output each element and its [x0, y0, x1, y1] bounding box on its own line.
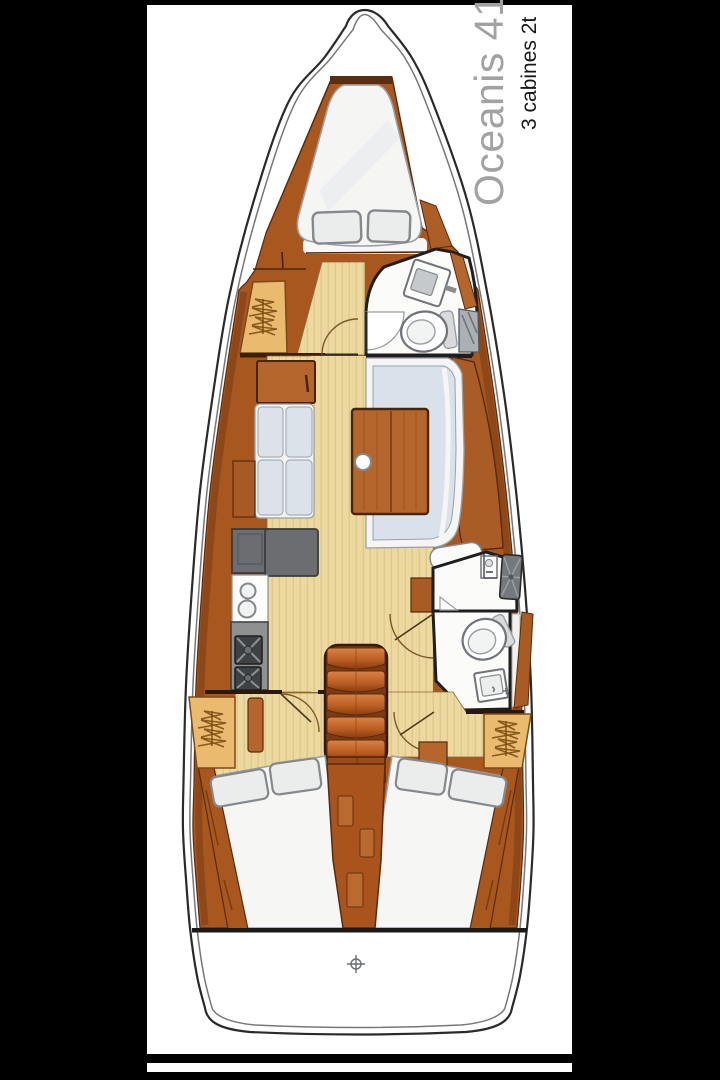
svg-text:Oceanis 41: Oceanis 41 [466, 0, 512, 206]
svg-text:3 cabines 2t: 3 cabines 2t [518, 17, 541, 130]
